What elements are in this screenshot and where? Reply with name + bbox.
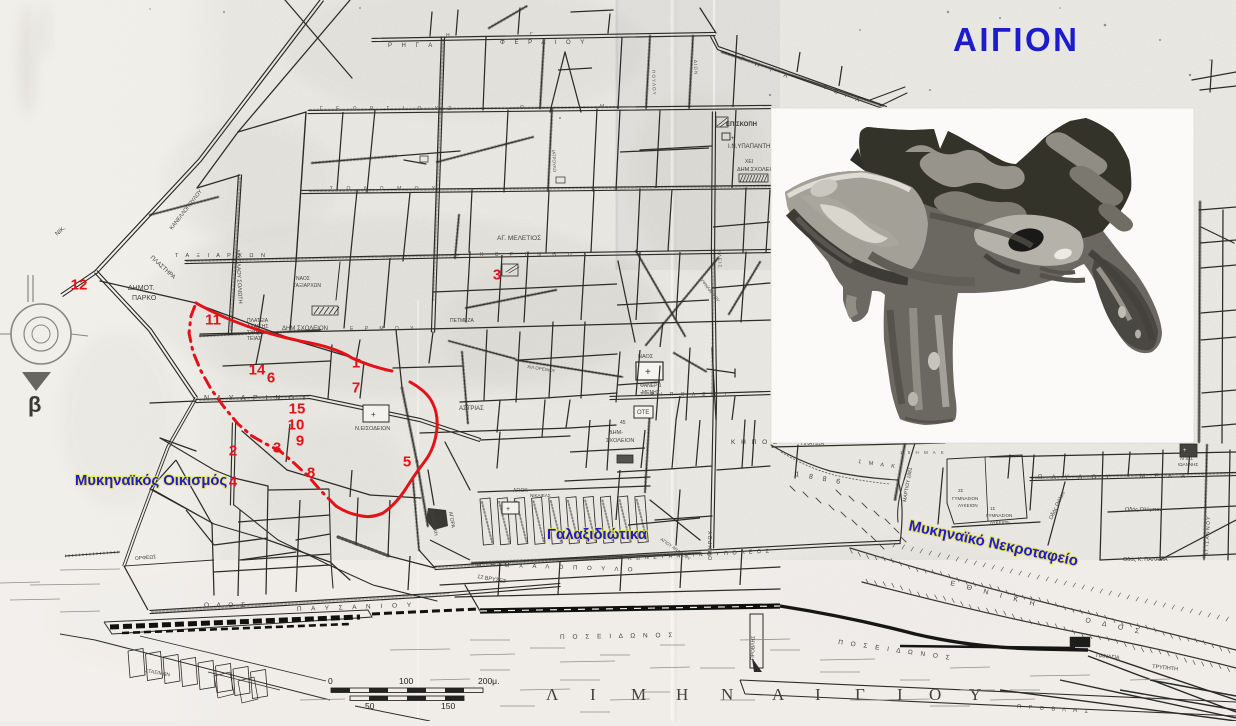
svg-text:1Σ: 1Σ (990, 506, 996, 511)
svg-text:+: + (1183, 448, 1187, 454)
svg-text:ΑΓΙΟΚ: ΑΓΙΟΚ (513, 488, 528, 494)
svg-text:ΙΩΑΝΝΗΣ: ΙΩΑΝΝΗΣ (1178, 462, 1198, 467)
svg-text:Γ: Γ (855, 685, 865, 704)
svg-text:ΠΑΡΚΟ: ΠΑΡΚΟ (132, 295, 157, 302)
svg-text:150: 150 (441, 701, 455, 711)
svg-text:6: 6 (267, 370, 275, 387)
svg-text:Ν.ΕΙΣΟΔΕΙΩΝ: Ν.ΕΙΣΟΔΕΙΩΝ (355, 426, 390, 432)
svg-text:Π Ο Υ Λ Ο Υ: Π Ο Υ Λ Ο Υ (651, 70, 657, 95)
svg-text:Λ: Λ (546, 685, 559, 704)
svg-text:ΝΑΟΣ: ΝΑΟΣ (638, 354, 654, 360)
svg-text:3: 3 (493, 267, 501, 284)
svg-text:+: + (506, 506, 510, 513)
svg-text:ΝΙΚΑΙΕΛΣ: ΝΙΚΑΙΕΛΣ (530, 493, 551, 498)
svg-text:ΕΠΙΣΚΟΠΗ: ΕΠΙΣΚΟΠΗ (726, 122, 757, 128)
svg-text:100: 100 (399, 676, 413, 686)
svg-text:Ο Μ Η Ρ Ο Υ: Ο Μ Η Ρ Ο Υ (708, 530, 714, 560)
svg-text:Φ Ε Ρ Α Ι Ο Υ: Φ Ε Ρ Α Ι Ο Υ (500, 40, 588, 46)
svg-text:ΛΥΚΕΙΟΝ: ΛΥΚΕΙΟΝ (990, 520, 1010, 525)
svg-text:Μ Ε Λ Α: Μ Ε Λ Α (1140, 474, 1189, 480)
svg-text:7: 7 (352, 380, 360, 397)
svg-text:ΔΗΜ-: ΔΗΜ- (609, 430, 623, 436)
svg-text:Ο: Ο (520, 105, 524, 111)
svg-text:Τ Α Ξ Ι Α Ρ Χ Ω Ν: Τ Α Ξ Ι Α Ρ Χ Ω Ν (175, 253, 268, 259)
svg-text:Ι.Ν.ΥΠΑΠΑΝΤΗ: Ι.Ν.ΥΠΑΠΑΝΤΗ (728, 144, 770, 150)
svg-text:Μ: Μ (600, 104, 604, 110)
svg-text:2: 2 (229, 443, 237, 460)
svg-text:Μυκηναϊκός Οικισμός: Μυκηναϊκός Οικισμός (75, 473, 227, 489)
svg-text:ΑΣΤΡΙΑΣ: ΑΣΤΡΙΑΣ (459, 406, 484, 412)
svg-text:ΑΓΙΟΣ: ΑΓΙΟΣ (1180, 456, 1193, 461)
svg-text:12: 12 (71, 277, 88, 294)
svg-text:Γαλαξιδιώτικα: Γαλαξιδιώτικα (547, 526, 648, 543)
svg-text:5: 5 (403, 454, 411, 471)
svg-text:Γ Ε Ω Ρ Γ Ι Ο Υ: Γ Ε Ω Ρ Γ Ι Ο Υ (320, 106, 444, 112)
svg-text:ΔΗΜ ΣΧΟΛΕΙΟΝ: ΔΗΜ ΣΧΟΛΕΙΟΝ (282, 326, 328, 332)
svg-text:50: 50 (365, 701, 375, 711)
svg-text:11: 11 (205, 312, 221, 329)
svg-text:Ι: Ι (897, 685, 903, 704)
svg-text:+: + (645, 367, 651, 378)
svg-text:9: 9 (296, 433, 304, 450)
svg-text:8: 8 (307, 465, 315, 482)
svg-text:Ε Ρ Μ Ο Υ: Ε Ρ Μ Ο Υ (350, 326, 418, 332)
svg-text:ΓΥΜΝΑΣΙΟΝ: ΓΥΜΝΑΣΙΟΝ (986, 513, 1012, 518)
svg-text:Υ: Υ (969, 685, 981, 704)
svg-text:β: β (28, 392, 41, 417)
svg-text:Ι: Ι (590, 685, 596, 704)
svg-text:ΧΕΙ: ΧΕΙ (745, 159, 753, 165)
svg-text:ΟΤΕ: ΟΤΕ (637, 410, 649, 416)
svg-text:ΛΥΚΕΙΟΝ: ΛΥΚΕΙΟΝ (958, 503, 978, 508)
svg-text:ΑΓ. ΜΕΛΕΤΙΟΣ: ΑΓ. ΜΕΛΕΤΙΟΣ (497, 235, 541, 242)
svg-text:ΓΥΜΝΑΣΙΟΝ: ΓΥΜΝΑΣΙΟΝ (952, 496, 978, 501)
svg-text:Σ Ο Λ Ω Μ Ο Υ: Σ Ο Λ Ω Μ Ο Υ (330, 186, 441, 192)
svg-text:Η: Η (676, 685, 688, 704)
svg-text:Ν: Ν (721, 685, 733, 704)
svg-text:ΑΙΓΙΟΝ: ΑΙΓΙΟΝ (953, 21, 1080, 58)
svg-text:ΠΡΟΒΛΗΣ: ΠΡΟΒΛΗΣ (750, 636, 757, 660)
svg-text:4: 4 (229, 474, 238, 491)
svg-text:Π Α Υ Λ Ο Υ: Π Α Υ Λ Ο Υ (1038, 475, 1114, 481)
svg-text:3: 3 (273, 440, 281, 457)
svg-text:Α: Α (772, 685, 785, 704)
svg-text:Δ Ι Ω Ν: Δ Ι Ω Ν (693, 60, 698, 75)
svg-text:15: 15 (289, 401, 306, 418)
svg-text:+: + (731, 136, 735, 142)
svg-text:ΔΗΜΟΤ.: ΔΗΜΟΤ. (128, 285, 155, 292)
svg-text:1: 1 (352, 355, 360, 372)
svg-text:ΝΑΟΣ: ΝΑΟΣ (296, 276, 310, 282)
svg-text:ΤΑΞΙΑΡΧΩΝ: ΤΑΞΙΑΡΧΩΝ (293, 283, 321, 289)
svg-text:Η: Η (446, 33, 450, 39)
svg-text:+: + (371, 410, 376, 419)
svg-text:Γ: Γ (530, 32, 533, 38)
svg-text:Οδός Ολύμπου: Οδός Ολύμπου (1125, 506, 1162, 513)
svg-text:Ο Δ Ο Σ: Ο Δ Ο Σ (204, 602, 248, 609)
svg-text:ΠΕΤΜΕΖΑ: ΠΕΤΜΕΖΑ (450, 318, 475, 324)
svg-text:14: 14 (249, 362, 266, 379)
svg-text:Ι: Ι (815, 685, 821, 704)
svg-text:Οδός Κ. ΠΑΛΑΜΑ: Οδός Κ. ΠΑΛΑΜΑ (1123, 556, 1168, 563)
svg-text:45: 45 (620, 420, 626, 426)
svg-text:200μ.: 200μ. (478, 676, 499, 686)
svg-text:Κ Ο Ρ Ι Ν Θ Ο Υ: Κ Ο Ρ Ι Ν Θ Ο Υ (480, 252, 591, 258)
svg-text:ΤΕΙΑΣ: ΤΕΙΑΣ (247, 336, 261, 342)
svg-text:1 5 Η Μ Α Κ: 1 5 Η Μ Α Κ (900, 450, 946, 455)
svg-text:Ρ Η Γ Α: Ρ Η Γ Α (388, 43, 436, 49)
svg-text:Μ: Μ (631, 685, 646, 704)
svg-text:2Σ: 2Σ (958, 488, 964, 493)
svg-text:0: 0 (328, 676, 333, 686)
svg-text:ΦΑΝΕΡΩ: ΦΑΝΕΡΩ (640, 383, 661, 389)
svg-text:Ο: Ο (929, 685, 941, 704)
svg-text:10: 10 (288, 417, 305, 434)
svg-text:Τ Ρ Ι Π Ο Λ Ε Ω Σ: Τ Ρ Ι Π Ο Λ Ε Ω Σ (640, 392, 730, 398)
svg-text:Κ Λ Ε Ι Σ: Κ Λ Ε Ι Σ (717, 250, 723, 268)
svg-text:ΣΧΟΛΕΙΟΝ: ΣΧΟΛΕΙΟΝ (606, 438, 634, 444)
svg-text:Ζ: Ζ (448, 106, 451, 112)
